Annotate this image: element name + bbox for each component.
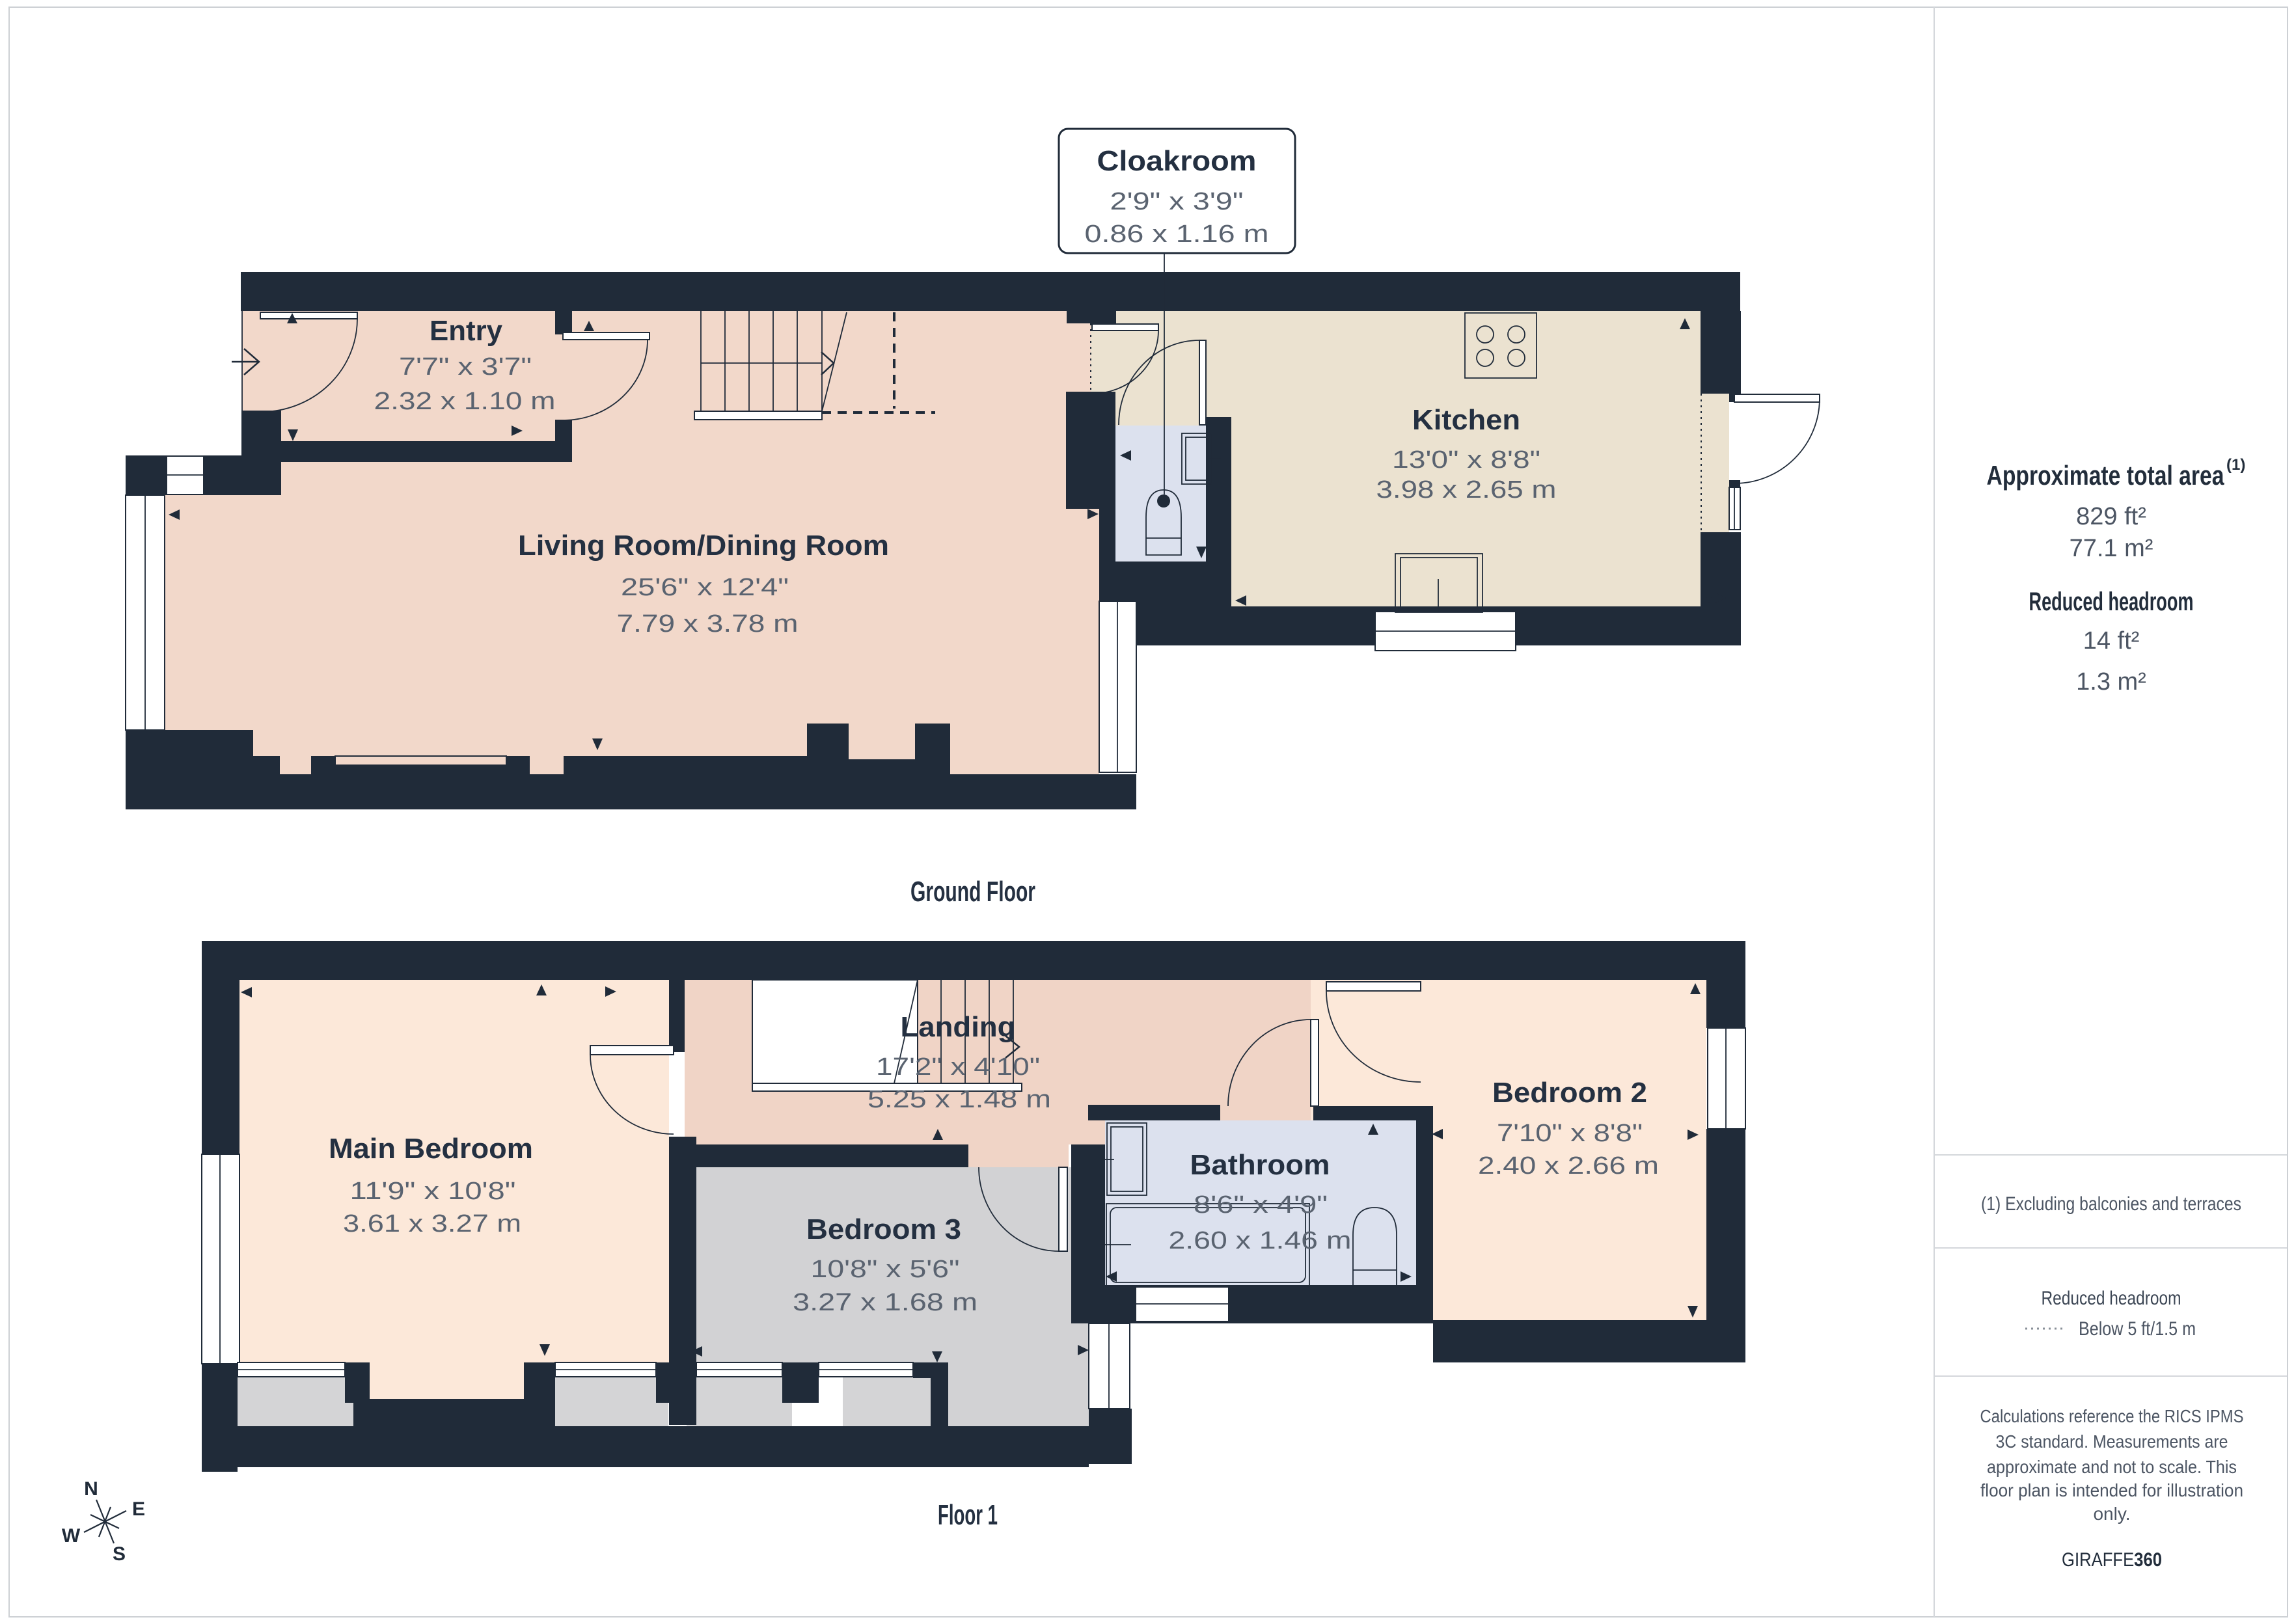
svg-text:Reduced headroom: Reduced headroom [2042,1288,2181,1309]
svg-text:Calculations reference the RIC: Calculations reference the RICS IPMS [1980,1406,2244,1426]
svg-text:2.60 x 1.46 m: 2.60 x 1.46 m [1169,1227,1352,1254]
svg-text:Main Bedroom: Main Bedroom [329,1133,533,1165]
svg-text:3.98 x 2.65 m: 3.98 x 2.65 m [1376,476,1557,504]
svg-text:Entry: Entry [430,315,503,347]
svg-text:829 ft²: 829 ft² [2076,503,2146,530]
svg-text:1.3 m²: 1.3 m² [2076,668,2146,696]
svg-text:Bedroom 2: Bedroom 2 [1492,1077,1647,1109]
svg-text:Approximate total area: Approximate total area [1987,460,2225,491]
svg-text:W: W [62,1525,81,1547]
svg-text:7'7" x 3'7": 7'7" x 3'7" [399,353,532,381]
svg-text:3.61 x 3.27 m: 3.61 x 3.27 m [343,1210,521,1238]
svg-text:S: S [113,1543,126,1565]
svg-text:Kitchen: Kitchen [1412,404,1520,436]
svg-text:Ground Floor: Ground Floor [910,876,1035,908]
svg-text:Living Room/Dining Room: Living Room/Dining Room [518,530,889,562]
svg-text:only.: only. [2093,1504,2130,1524]
svg-text:Bathroom: Bathroom [1190,1149,1330,1181]
svg-text:77.1 m²: 77.1 m² [2070,535,2153,562]
svg-text:11'9" x 10'8": 11'9" x 10'8" [350,1178,516,1205]
svg-text:2'9" x 3'9": 2'9" x 3'9" [1110,188,1244,215]
svg-text:3C standard. Measurements are: 3C standard. Measurements are [1996,1431,2228,1452]
svg-text:N: N [84,1478,98,1500]
svg-text:10'8" x 5'6": 10'8" x 5'6" [811,1256,960,1283]
svg-text:approximate and not to scale.: approximate and not to scale. This [1987,1457,2237,1477]
svg-text:5.25 x 1.48 m: 5.25 x 1.48 m [868,1086,1051,1113]
svg-text:Below 5 ft/1.5 m: Below 5 ft/1.5 m [2079,1318,2196,1340]
svg-text:Bedroom 3: Bedroom 3 [806,1213,961,1245]
svg-text:Floor 1: Floor 1 [938,1499,998,1531]
svg-text:25'6" x 12'4": 25'6" x 12'4" [621,574,789,601]
svg-text:0.86 x 1.16 m: 0.86 x 1.16 m [1085,221,1269,248]
svg-text:3.27 x 1.68 m: 3.27 x 1.68 m [793,1289,977,1316]
svg-text:Landing: Landing [901,1011,1016,1043]
svg-text:7'10" x 8'8": 7'10" x 8'8" [1497,1120,1643,1147]
svg-text:13'0" x 8'8": 13'0" x 8'8" [1392,446,1540,474]
svg-text:(1): (1) [2226,456,2245,474]
svg-text:GIRAFFE360: GIRAFFE360 [2062,1549,2162,1571]
svg-text:8'6" x 4'9": 8'6" x 4'9" [1194,1191,1328,1219]
svg-text:17'2" x 4'10": 17'2" x 4'10" [876,1053,1040,1081]
svg-text:14 ft²: 14 ft² [2083,627,2140,655]
svg-text:Cloakroom: Cloakroom [1097,145,1257,177]
svg-text:(1) Excluding balconies and te: (1) Excluding balconies and terraces [1981,1193,2241,1215]
svg-text:7.79 x 3.78 m: 7.79 x 3.78 m [617,610,799,638]
svg-text:floor plan is intended for ill: floor plan is intended for illustration [1980,1480,2243,1500]
svg-text:Reduced headroom: Reduced headroom [2029,588,2194,616]
svg-text:2.40 x 2.66 m: 2.40 x 2.66 m [1478,1152,1659,1180]
svg-text:2.32 x 1.10 m: 2.32 x 1.10 m [374,388,556,415]
svg-text:E: E [132,1498,145,1520]
